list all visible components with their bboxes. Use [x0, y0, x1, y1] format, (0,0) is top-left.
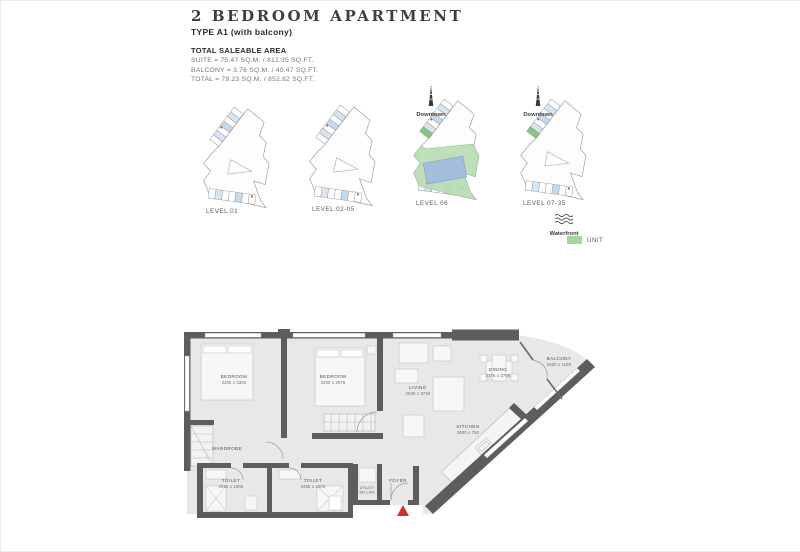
landmark-label: Downtown: [408, 112, 454, 118]
downtown-landmark: Downtown: [515, 86, 561, 118]
level-floorplate-graphic: [194, 104, 294, 224]
kitchen-dims: 3600 x 750: [457, 430, 480, 435]
dining-label: DINING: [489, 367, 508, 372]
bedroom2-label: BEDROOM: [320, 374, 347, 379]
foyer-label: FOYER: [389, 478, 407, 483]
downtown-tower-icon: [531, 86, 545, 106]
level-diagram-2: LEVEL 02-05: [300, 92, 404, 222]
level-label: LEVEL 06: [416, 200, 448, 207]
kitchen-label: KITCHEN: [457, 424, 480, 429]
toilet1-label: TOILET: [222, 478, 240, 483]
landmark-label: Downtown: [515, 112, 561, 118]
toilet1-dims: 2550 x 1905: [219, 484, 244, 489]
level-label: LEVEL 01: [206, 208, 238, 215]
level-label: LEVEL 07-35: [523, 200, 566, 207]
floorplan-graphic: BEDROOM 3200 x 3300 BEDROOM 3200 x 2975 …: [181, 316, 631, 531]
suite-area-line: SUITE = 75.47 SQ.M. / 812.35 SQ.FT.: [191, 56, 318, 66]
level-diagram-4: Downtown LEVEL 07-35: [511, 86, 615, 216]
unit-swatch: [567, 236, 582, 244]
level-floorplate-graphic: [300, 102, 400, 222]
utility-label: UTILITY: [360, 486, 375, 490]
living-label: LIVING: [409, 385, 426, 390]
bedroom2-dims: 3200 x 2975: [321, 380, 346, 385]
apartment-floorplan: BEDROOM 3200 x 3300 BEDROOM 3200 x 2975 …: [181, 316, 631, 531]
balcony-area-line: BALCONY = 3.76 SQ.M. / 40.47 SQ.FT.: [191, 66, 318, 76]
unit-legend: UNIT: [567, 236, 603, 244]
toilet2-label: TOILET: [304, 478, 322, 483]
waves-icon: [554, 213, 574, 225]
brochure-page: 2 BEDROOM APARTMENT TYPE A1 (with balcon…: [0, 0, 800, 552]
type-subtitle: TYPE A1 (with balcony): [191, 27, 292, 37]
wardrobe-label: WARDROBE: [212, 446, 242, 451]
level-diagram-1: LEVEL 01: [194, 94, 298, 224]
balcony-dims: 2600 x 1190: [547, 362, 572, 367]
bedroom1-label: BEDROOM: [221, 374, 248, 379]
utility-dims: 850 x 800: [360, 491, 375, 495]
area-heading: TOTAL SALEABLE AREA: [191, 46, 286, 55]
bedroom1-dims: 3200 x 3300: [222, 380, 247, 385]
dining-dims: 2175 x 2700: [486, 373, 511, 378]
downtown-tower-icon: [424, 86, 438, 106]
page-title: 2 BEDROOM APARTMENT: [191, 7, 463, 25]
area-details: SUITE = 75.47 SQ.M. / 812.35 SQ.FT. BALC…: [191, 56, 318, 85]
level-diagram-3: Downtown LEVEL 06: [404, 86, 508, 216]
waterfront-marker: Waterfront: [542, 212, 586, 237]
total-area-line: TOTAL = 79.23 SQ.M. / 852.82 SQ.FT.: [191, 75, 318, 85]
level-label: LEVEL 02-05: [312, 206, 355, 213]
balcony-label: BALCONY: [547, 356, 572, 361]
downtown-landmark: Downtown: [408, 86, 454, 118]
toilet2-dims: 2955 x 1500: [301, 484, 326, 489]
unit-legend-label: UNIT: [587, 237, 603, 244]
living-dims: 2600 x 3725: [406, 391, 431, 396]
